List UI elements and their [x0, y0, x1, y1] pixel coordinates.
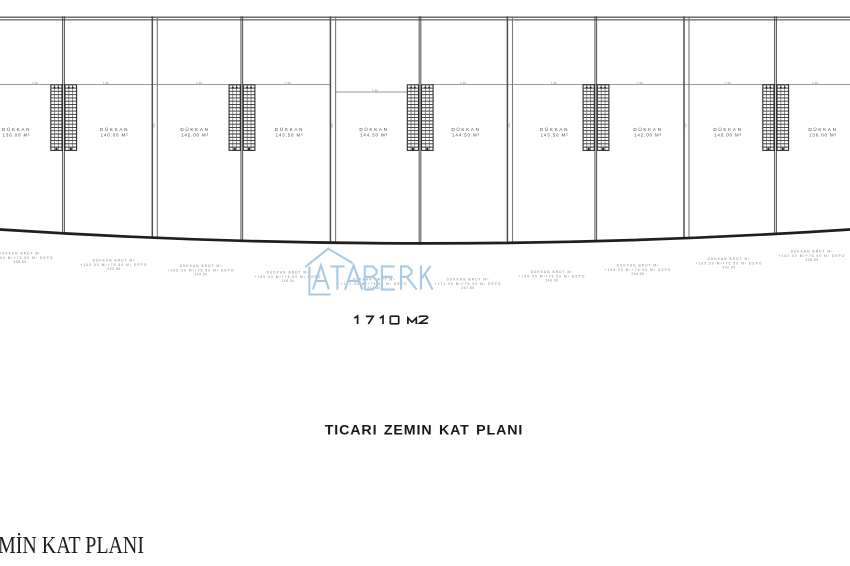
svg-text:7.50: 7.50: [684, 123, 688, 129]
svg-text:7.50: 7.50: [196, 81, 203, 85]
svg-text:DÜKKAN: DÜKKAN: [100, 126, 129, 132]
svg-text:7.50: 7.50: [725, 81, 732, 85]
svg-text:+162.00 M²+76.50 M² DEPO: +162.00 M²+76.50 M² DEPO: [0, 256, 53, 260]
svg-text:7.50: 7.50: [507, 123, 511, 129]
svg-text:DÜKKAN BRÜT M²: DÜKKAN BRÜT M²: [267, 270, 310, 274]
svg-text:7.50: 7.50: [32, 81, 39, 85]
svg-text:246.00: 246.00: [281, 279, 294, 283]
svg-text:7.50: 7.50: [152, 123, 156, 129]
svg-text:DÜKKAN BRÜT M²: DÜKKAN BRÜT M²: [531, 270, 574, 274]
svg-text:+169.50 M²+76.50 M² DEPO: +169.50 M²+76.50 M² DEPO: [519, 274, 586, 278]
svg-text:+165.50 M²+76.50 M² DEPO: +165.50 M²+76.50 M² DEPO: [696, 261, 763, 265]
svg-text:DÜKKAN BRÜT M²: DÜKKAN BRÜT M²: [447, 277, 490, 281]
svg-text:DÜKKAN BRÜT M²: DÜKKAN BRÜT M²: [617, 263, 660, 267]
svg-text:7.50: 7.50: [812, 81, 819, 85]
svg-text:MİN KAT PLANI: MİN KAT PLANI: [0, 532, 144, 559]
svg-text:+168.00 M²+76.50 M² DEPO: +168.00 M²+76.50 M² DEPO: [168, 268, 235, 272]
svg-text:DÜKKAN: DÜKKAN: [180, 126, 209, 132]
svg-text:DÜKKAN: DÜKKAN: [808, 126, 837, 132]
svg-text:136.00 M²: 136.00 M²: [809, 132, 837, 137]
svg-text:DÜKKAN: DÜKKAN: [275, 126, 304, 132]
svg-text:DÜKKAN BRÜT M²: DÜKKAN BRÜT M²: [0, 251, 41, 255]
svg-text:DÜKKAN BRÜT M²: DÜKKAN BRÜT M²: [791, 249, 834, 253]
svg-text:246.00: 246.00: [545, 279, 558, 283]
svg-text:142.00 M²: 142.00 M²: [181, 132, 209, 137]
svg-text:140.00 M²: 140.00 M²: [101, 132, 129, 137]
svg-text:244.50: 244.50: [631, 272, 644, 276]
svg-text:242.00: 242.00: [107, 267, 120, 271]
svg-text:144.50 M²: 144.50 M²: [360, 132, 388, 137]
svg-text:136.00 M²: 136.00 M²: [3, 132, 31, 137]
svg-text:238.50: 238.50: [805, 258, 818, 262]
svg-text:DÜKKAN: DÜKKAN: [451, 126, 480, 132]
svg-text:+168.00 M²+76.50 M² DEPO: +168.00 M²+76.50 M² DEPO: [605, 268, 672, 272]
svg-text:DÜKKAN: DÜKKAN: [359, 126, 388, 132]
svg-text:144.50 M²: 144.50 M²: [452, 132, 480, 137]
svg-text:7.50: 7.50: [330, 123, 334, 129]
svg-text:DÜKKAN: DÜKKAN: [713, 126, 742, 132]
svg-text:143.50 M²: 143.50 M²: [276, 132, 304, 137]
svg-text:247.50: 247.50: [461, 286, 474, 290]
svg-text:+162.00 M²+76.50 M² DEPO: +162.00 M²+76.50 M² DEPO: [779, 254, 846, 258]
svg-text:244.50: 244.50: [194, 273, 207, 277]
svg-text:+165.50 M²+76.50 M² DEPO: +165.50 M²+76.50 M² DEPO: [81, 263, 148, 267]
svg-text:238.50: 238.50: [13, 260, 26, 264]
svg-text:7.50: 7.50: [103, 81, 110, 85]
svg-text:DÜKKAN BRÜT M²: DÜKKAN BRÜT M²: [180, 264, 223, 268]
svg-text:7.50: 7.50: [372, 88, 379, 92]
svg-text:7.50: 7.50: [460, 81, 467, 85]
svg-text:DÜKKAN BRÜT M²: DÜKKAN BRÜT M²: [708, 257, 751, 261]
svg-text:TICARI ZEMIN KAT PLANI: TICARI ZEMIN KAT PLANI: [325, 423, 524, 439]
svg-text:DÜKKAN: DÜKKAN: [2, 126, 31, 132]
svg-text:DÜKKAN: DÜKKAN: [540, 126, 569, 132]
svg-text:143.50 M²: 143.50 M²: [541, 132, 569, 137]
svg-text:140.00 M²: 140.00 M²: [714, 132, 742, 137]
svg-text:7.50: 7.50: [637, 81, 644, 85]
svg-text:7.50: 7.50: [551, 81, 558, 85]
svg-text:DÜKKAN: DÜKKAN: [633, 126, 662, 132]
svg-text:+171.00 M²+76.50 M² DEPO: +171.00 M²+76.50 M² DEPO: [435, 282, 502, 286]
svg-text:DÜKKAN BRÜT M²: DÜKKAN BRÜT M²: [93, 258, 136, 262]
svg-text:242.00: 242.00: [722, 266, 735, 270]
svg-text:7.50: 7.50: [285, 81, 292, 85]
svg-text:+169.50 M²+76.50 M² DEPO: +169.50 M²+76.50 M² DEPO: [255, 275, 322, 279]
svg-text:+171.00 M²+76.50 M² DEPO: +171.00 M²+76.50 M² DEPO: [341, 282, 408, 286]
svg-text:142.00 M²: 142.00 M²: [634, 132, 662, 137]
